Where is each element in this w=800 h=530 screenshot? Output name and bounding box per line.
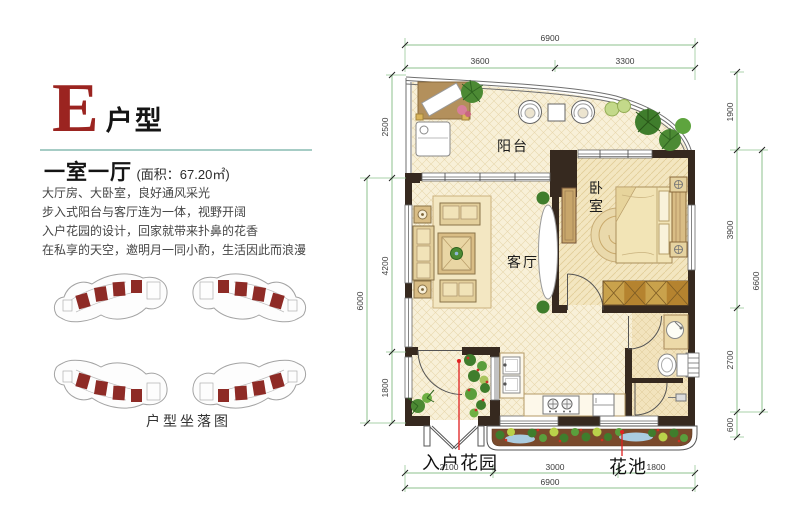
label-entry-garden: 入户花园 [422,453,498,473]
desc-line-3: 入户花园的设计，回家就带来扑鼻的花香 [42,222,306,241]
label-living-room: 客厅 [507,254,539,270]
dim-top-right: 3300 [616,56,635,66]
desc-line-4: 在私享的天空，邀明月一同小酌，生活因此而浪漫 [42,241,306,260]
dim-left-total: 6000 [355,291,365,310]
bed [616,187,672,263]
plant-pot [537,192,550,205]
coffee-table [438,233,475,274]
headboard-nightstands [670,177,687,257]
dim-bottom-2: 3000 [546,462,565,472]
marketing-description: 大厅房、大卧室，良好通风采光 步入式阳台与客厅连为一体，视野开阔 入户花园的设计… [42,184,306,260]
desc-line-1: 大厅房、大卧室，良好通风采光 [42,184,306,203]
dim-right-3: 2700 [725,350,735,369]
entry-double-door [424,426,484,449]
unit-subtitle: 一室一厅 (面积：67.20㎡) [44,156,230,186]
balcony-chairs [519,101,595,124]
dim-left-2: 4200 [380,256,390,275]
area-note: (面积：67.20㎡) [136,167,229,182]
label-flower-bed: 花池 [609,457,647,477]
washing-machine [416,122,450,156]
building-thumb-top-left [54,274,167,322]
unit-title: E 户型 [52,78,164,140]
toilet [658,354,688,376]
flower-bed [487,426,697,450]
building-thumb-bottom-left [54,360,167,408]
stove [543,396,579,414]
unit-letter: E [52,78,99,140]
label-bedroom-1: 卧 [589,180,605,196]
label-balcony: 阳台 [497,138,529,154]
title-divider [40,149,312,151]
dim-left-1: 2500 [380,117,390,136]
dim-right-2: 3900 [725,220,735,239]
dim-left-3: 1800 [380,378,390,397]
dim-bottom-total: 6900 [541,477,560,487]
building-thumb-bottom-right [193,360,306,408]
wash-basin [667,322,684,339]
fridge [593,394,614,416]
site-location-map [45,262,315,422]
dim-right-1: 1900 [725,102,735,121]
bedroom-cabinet [562,188,576,243]
layout-name: 一室一厅 [44,161,132,184]
label-bedroom-2: 室 [589,198,605,214]
building-thumb-top-right [193,274,306,322]
dim-top-left: 3600 [471,56,490,66]
unit-letter-suffix: 户型 [106,99,164,138]
dim-right-total: 6600 [751,271,761,290]
sitemap-caption: 户型坐落图 [146,411,231,431]
dim-right-4: 600 [725,418,735,432]
console-cabinet [539,205,558,299]
wardrobe [603,281,688,305]
plant-pot [537,301,550,314]
floorplan-page: E 户型 一室一厅 (面积：67.20㎡) 大厅房、大卧室，良好通风采光 步入式… [0,0,800,530]
floor-plan: 6900 3600 3300 2500 4200 1800 6000 1900 … [350,20,780,500]
dim-bottom-3: 1800 [647,462,666,472]
dim-top-total: 6900 [541,33,560,43]
desc-line-2: 步入式阳台与客厅连为一体，视野开阔 [42,203,306,222]
